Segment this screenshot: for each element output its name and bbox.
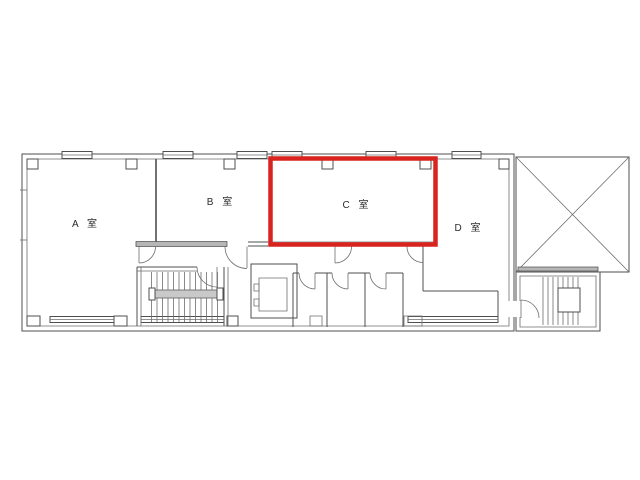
floor-plan-drawing: A 室 B 室 C 室 D 室 [0, 0, 640, 480]
window-icon [50, 317, 114, 323]
window-icon [452, 152, 481, 159]
column-mark-icon [27, 316, 40, 326]
door-arc-icon [299, 273, 315, 289]
room-d-label: D 室 [455, 221, 484, 234]
window-icon [141, 317, 224, 323]
window-icon [163, 152, 193, 159]
doors [139, 247, 423, 269]
door-arc-icon [332, 273, 348, 289]
room-c-label: C 室 [343, 198, 372, 211]
door-arc-icon [407, 247, 423, 263]
elevator-icon [251, 264, 297, 318]
column-mark-icon [126, 159, 137, 169]
door-arc-icon [225, 247, 247, 269]
void-x-area-icon [516, 157, 629, 272]
room-b-label: B 室 [207, 195, 235, 208]
column-mark-icon [27, 159, 38, 169]
bottom-windows [50, 317, 498, 323]
column-mark-icon [227, 316, 238, 326]
door-arc-icon [335, 247, 352, 264]
column-mark-icon [114, 316, 127, 326]
room-a-label: A 室 [72, 217, 100, 230]
toilet-stalls-icon [293, 273, 422, 327]
door-arc-icon [139, 247, 156, 264]
floor-plan-canvas: A 室 B 室 C 室 D 室 [0, 0, 640, 480]
window-icon [237, 152, 267, 159]
stairwell-right-icon [508, 272, 600, 331]
room-labels: A 室 B 室 C 室 D 室 [72, 195, 483, 234]
column-mark-icon [224, 159, 235, 169]
column-mark-icon [499, 159, 509, 169]
window-icon [62, 152, 92, 159]
door-arc-icon [370, 273, 386, 289]
window-icon [408, 317, 498, 323]
